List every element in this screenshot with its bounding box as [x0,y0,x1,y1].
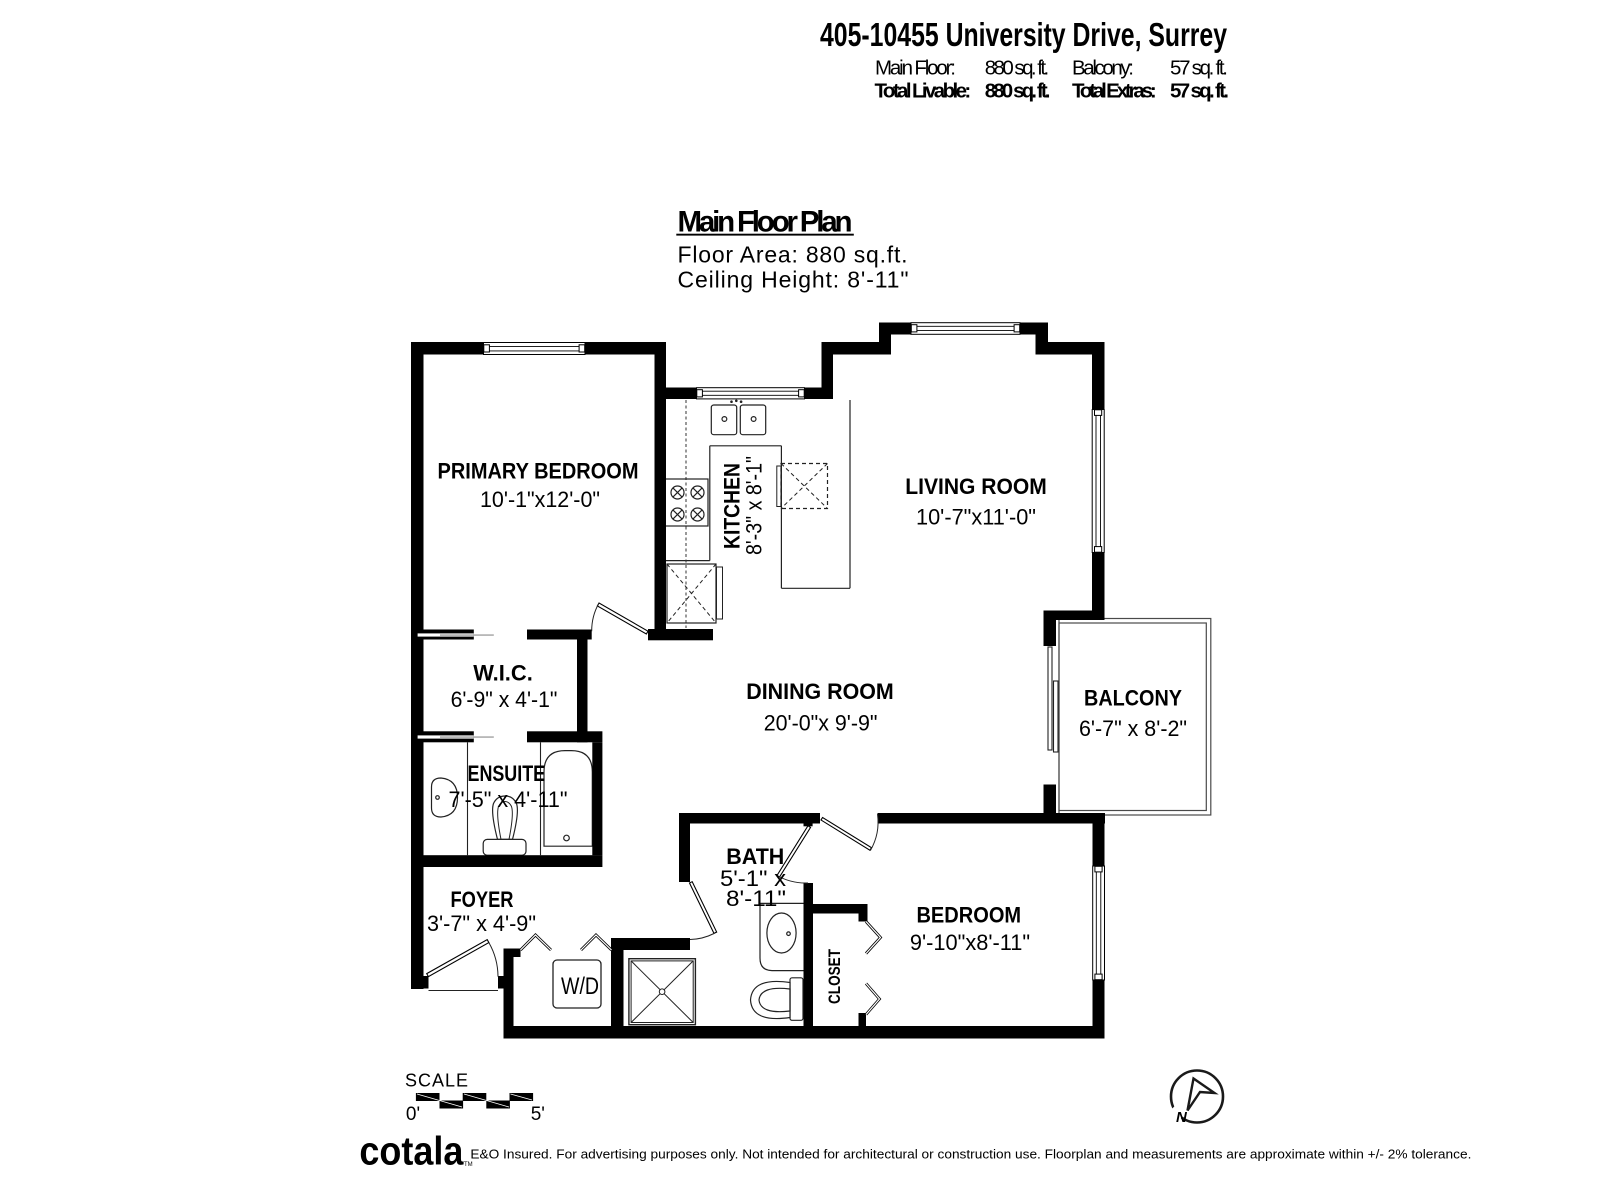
svg-text:8'-3" x 8'-1": 8'-3" x 8'-1" [742,456,767,555]
svg-text:8'-11": 8'-11" [726,886,786,911]
svg-text:BALCONY: BALCONY [1084,686,1182,711]
svg-text:Main Floor:: Main Floor: [875,57,956,80]
svg-text:57 sq. ft.: 57 sq. ft. [1170,57,1228,80]
svg-text:TM: TM [464,1162,473,1168]
svg-text:880 sq. ft.: 880 sq. ft. [985,79,1051,102]
svg-text:DINING ROOM: DINING ROOM [746,679,894,704]
svg-text:10'-7"x11'-0": 10'-7"x11'-0" [916,505,1036,530]
svg-text:cotala: cotala [359,1130,464,1174]
svg-text:7'-5" x 4'-11": 7'-5" x 4'-11" [449,787,568,812]
svg-text:BEDROOM: BEDROOM [916,903,1021,928]
svg-text:9'-10"x8'-11": 9'-10"x8'-11" [910,930,1030,955]
svg-text:SCALE: SCALE [405,1070,469,1090]
svg-text:Total Extras:: Total Extras: [1072,79,1157,102]
svg-text:10'-1"x12'-0": 10'-1"x12'-0" [480,487,600,512]
svg-text:6'-7" x 8'-2": 6'-7" x 8'-2" [1079,716,1187,741]
svg-text:880 sq. ft.: 880 sq. ft. [985,57,1049,80]
svg-text:E&O Insured. For advertising p: E&O Insured. For advertising purposes on… [470,1147,1471,1162]
svg-text:6'-9" x 4'-1": 6'-9" x 4'-1" [451,687,558,712]
svg-text:Floor Area: 880 sq.ft.: Floor Area: 880 sq.ft. [678,242,908,268]
svg-text:3'-7" x 4'-9": 3'-7" x 4'-9" [427,911,536,936]
svg-text:405-10455 University Drive, Su: 405-10455 University Drive, Surrey [820,16,1227,53]
svg-text:CLOSET: CLOSET [826,949,844,1004]
svg-text:ENSUITE: ENSUITE [468,761,546,786]
svg-text:W.I.C.: W.I.C. [473,661,533,686]
svg-text:5': 5' [531,1104,545,1125]
svg-text:FOYER: FOYER [451,887,514,912]
svg-text:Ceiling Height: 8'-11": Ceiling Height: 8'-11" [678,267,909,293]
svg-text:Main Floor Plan: Main Floor Plan [678,205,853,238]
svg-text:W/D: W/D [561,973,599,1000]
svg-text:Total Livable:: Total Livable: [875,79,972,102]
svg-text:N: N [1176,1109,1188,1126]
svg-text:Balcony:: Balcony: [1072,57,1134,80]
svg-text:20'-0"x 9'-9": 20'-0"x 9'-9" [764,711,878,736]
svg-text:0': 0' [406,1104,420,1125]
svg-text:LIVING ROOM: LIVING ROOM [905,474,1047,499]
svg-text:PRIMARY BEDROOM: PRIMARY BEDROOM [438,459,639,484]
svg-text:57 sq. ft.: 57 sq. ft. [1170,79,1229,102]
